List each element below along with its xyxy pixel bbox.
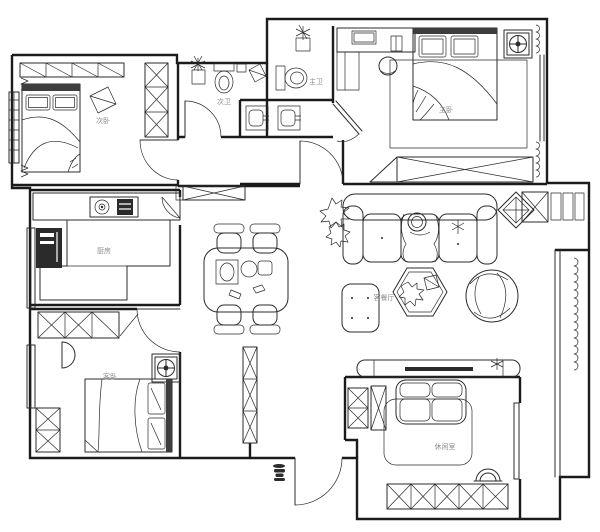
label-leisure-room: 休闲室 [435,442,456,451]
entry-door [295,458,342,505]
stove [90,197,138,217]
rug [384,399,472,465]
sink [278,106,301,130]
label-guest-bedroom: 客卧 [103,372,117,381]
laundry-basket [249,64,266,82]
dining-chair [214,224,244,253]
room-guest-bedroom: 客卧 [36,312,180,452]
label-master-bath: 主卫 [309,77,323,86]
desk [337,28,415,90]
sink [246,106,269,130]
shelf [237,64,246,72]
plant [191,56,205,84]
coffee-table [393,268,447,316]
lounge-chair [466,270,518,322]
label-secondary-bedroom: 次卧 [96,116,110,125]
sofa [396,380,466,424]
room-secondary-bedroom: 次卧 [20,63,168,172]
window-guest-bedroom [27,345,35,408]
hall-cabinet [176,186,245,200]
plant [320,198,350,247]
wardrobe [38,312,138,338]
ottoman [342,284,379,332]
arch-decor [474,469,502,481]
label-kitchen: 厨房 [97,246,111,255]
window-leisure [514,403,519,479]
plant [296,25,310,51]
column-cabinet [145,63,168,137]
door-sec-bedroom [140,140,178,180]
room-master-bedroom: 主卧 [337,28,533,182]
floor-plan-drawing: 次卧 次卫 [0,0,600,532]
cabinet [36,408,60,452]
side-table [498,192,534,228]
toilet [214,63,234,93]
wardrobe [387,484,508,509]
label-secondary-bath: 次卫 [217,97,231,106]
window-master-bedroom [536,25,544,177]
dining-chair [250,305,280,334]
ac-unit [152,354,180,382]
tv-bench [357,358,520,377]
wardrobe [20,63,124,77]
door-sec-bath [185,101,221,137]
room-kitchen: 厨房 [33,193,180,300]
ac-unit [504,30,532,58]
cabinet [348,386,386,430]
chair [379,57,397,75]
bed [22,84,80,172]
corridor-cabinet [243,347,257,443]
bed [85,379,172,452]
label-master-bedroom: 主卧 [439,105,453,114]
window-balcony [555,250,578,477]
stool [90,87,116,113]
dining-chair [250,224,280,253]
floor-plan: 次卧 次卫 [0,0,600,532]
dining-chair [214,305,244,334]
label-living-dining: 客餐厅 [374,293,395,302]
tv-cabinet [370,157,533,182]
window-kitchen [27,228,35,308]
sofa [343,194,497,264]
door-master-bedroom [300,141,343,184]
rug [390,60,527,148]
door-master-bath [333,101,362,142]
entry-doorstop-stack [273,464,285,481]
room-master-bath: 主卫 [246,25,323,130]
room-leisure: 休闲室 [348,358,520,509]
room-living-dining: 客餐厅 [204,192,584,334]
nightstand [62,342,75,368]
toilet [276,66,307,90]
door-guest-bedroom [137,309,180,352]
bed [413,28,497,120]
dining-table [204,248,288,312]
fridge [36,228,62,268]
